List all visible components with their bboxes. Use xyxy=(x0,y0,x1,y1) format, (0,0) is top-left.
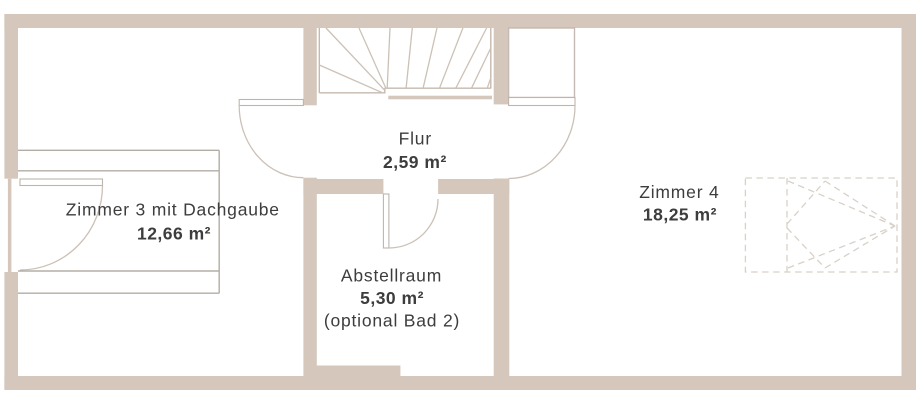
svg-text:(optional Bad 2): (optional Bad 2) xyxy=(324,310,460,330)
svg-text:5,30 m²: 5,30 m² xyxy=(360,288,424,308)
svg-text:Abstellraum: Abstellraum xyxy=(341,265,442,285)
svg-text:Zimmer 3 mit Dachgaube: Zimmer 3 mit Dachgaube xyxy=(66,200,280,220)
svg-text:Zimmer 4: Zimmer 4 xyxy=(639,182,719,202)
svg-text:12,66 m²: 12,66 m² xyxy=(137,224,211,244)
svg-text:2,59 m²: 2,59 m² xyxy=(383,152,447,172)
svg-text:Flur: Flur xyxy=(399,129,432,149)
svg-text:18,25 m²: 18,25 m² xyxy=(643,204,717,224)
